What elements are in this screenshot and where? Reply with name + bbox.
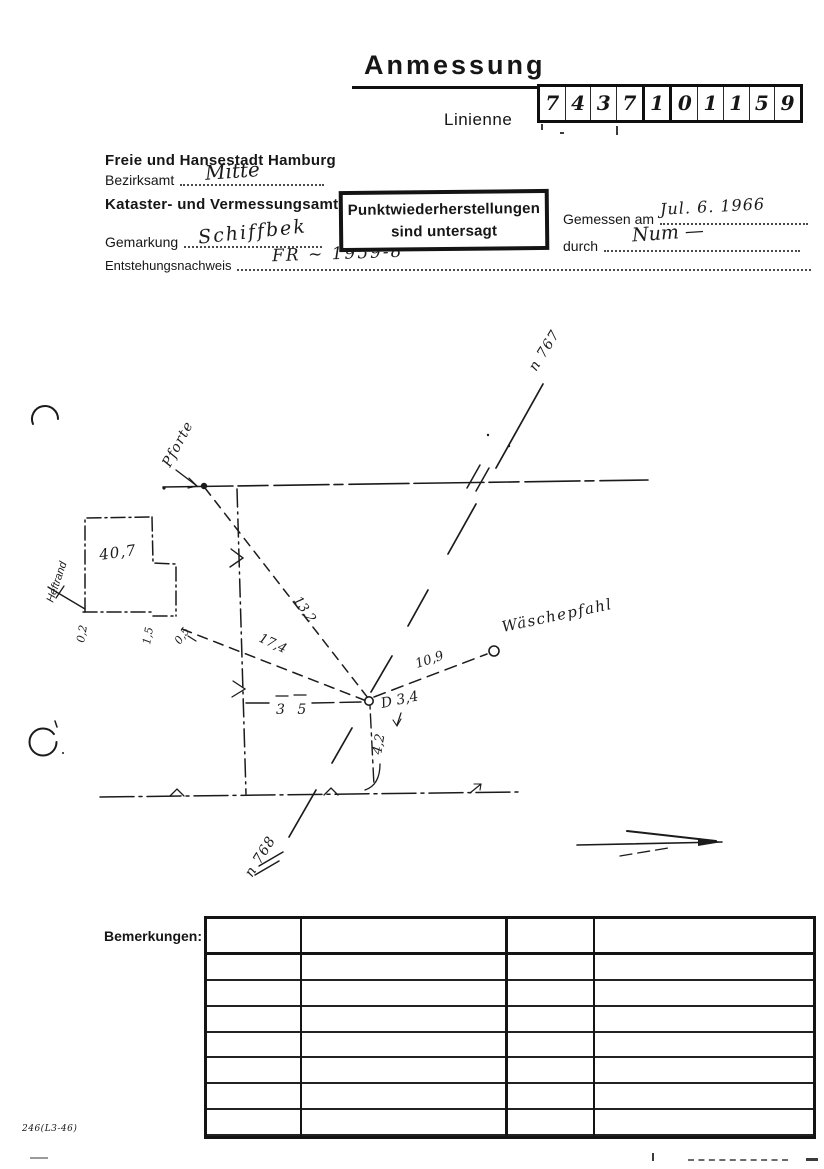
number-cell: 9	[774, 87, 800, 120]
column-divider	[505, 919, 508, 1136]
measure-value-corner: 17,4	[256, 631, 289, 657]
point-number-boxes: 7 4 3 7 1 0 1 1 5 9	[537, 84, 803, 123]
dotted-line	[180, 182, 324, 186]
table-row	[207, 1007, 813, 1033]
table-header-row	[207, 919, 813, 955]
number-cell: 1	[642, 87, 670, 120]
remarks-label: Bemerkungen:	[104, 928, 202, 944]
bezirksamt-value-handwritten: Mitte	[204, 157, 260, 185]
scan-speck	[616, 126, 618, 135]
arrow-mark	[577, 831, 722, 856]
line-number-lower-label: n 768	[242, 833, 280, 880]
scan-speck	[541, 124, 543, 130]
measure-line-corner	[182, 629, 364, 700]
waeschepfahl-label: Wäschepfahl	[500, 595, 614, 636]
table-row	[207, 955, 813, 981]
edge-offset-value: 1,5	[140, 626, 156, 645]
table-row	[207, 1033, 813, 1059]
gate-leader-line	[176, 470, 197, 488]
edge-offset-value: 0,5	[172, 625, 193, 647]
number-cell: 1	[723, 87, 749, 120]
dotted-line	[237, 267, 811, 271]
entstehungsnachweis-row: Entstehungsnachweis	[105, 258, 811, 273]
central-point	[365, 697, 401, 726]
line-number-upper-label: n 767	[526, 327, 564, 374]
durch-label: durch	[563, 238, 598, 254]
measure-line-gate	[205, 488, 368, 698]
heftrand-label: Heftrand	[44, 559, 69, 604]
table-row	[207, 1058, 813, 1084]
number-cell: 3	[590, 87, 616, 120]
remarks-table	[204, 916, 816, 1139]
gemarkung-label: Gemarkung	[105, 234, 178, 250]
building-area-label: 40,7	[97, 541, 138, 564]
scan-artifact	[688, 1159, 788, 1161]
table-row	[207, 981, 813, 1007]
stamp-line-1: Punktwiederherstellungen	[343, 198, 545, 222]
punch-hole-mark	[30, 406, 65, 755]
scan-artifact	[806, 1158, 818, 1161]
liniennetz-label: Linienne	[444, 110, 512, 130]
entstehungsnachweis-label: Entstehungsnachweis	[105, 258, 231, 273]
scan-artifact	[652, 1153, 654, 1161]
column-divider	[593, 919, 595, 1136]
measure-value-down: 4,2	[370, 733, 389, 757]
lower-boundary-line	[100, 784, 520, 797]
scan-dots	[487, 434, 510, 447]
scan-speck	[560, 132, 564, 134]
table-row	[207, 1110, 813, 1136]
number-cell: 1	[697, 87, 723, 120]
number-cell: 5	[749, 87, 775, 120]
number-cell: 7	[540, 87, 565, 120]
number-cell: 4	[565, 87, 591, 120]
margin-line	[48, 586, 85, 609]
edge-offset-value: 0,2	[74, 624, 90, 643]
measure-value-pole: 10,9	[414, 649, 446, 672]
scan-artifact	[30, 1157, 48, 1159]
measure-line-offset	[246, 695, 361, 703]
form-number: 246(L3-46)	[22, 1124, 77, 1134]
amt-line: Kataster- und Vermessungsamt	[105, 196, 338, 213]
number-cell: 0	[669, 87, 697, 120]
page-title: Anmessung	[352, 50, 558, 89]
measure-line-pole	[374, 646, 499, 697]
dotted-line	[604, 248, 800, 252]
column-divider	[300, 919, 302, 1136]
upper-boundary-line	[162, 480, 648, 490]
stamp-line-2: sind untersagt	[343, 220, 545, 244]
pforte-label: Pforte	[159, 419, 197, 471]
table-row	[207, 1084, 813, 1110]
scanned-survey-form: Anmessung Linienne 7 4 3 7 1 0 1 1 5 9 F…	[0, 0, 824, 1169]
bezirksamt-label: Bezirksamt	[105, 172, 174, 188]
survey-line-n767-n768	[255, 384, 543, 875]
vertical-boundary-line	[230, 489, 246, 794]
prohibition-stamp: Punktwiederherstellungen sind untersagt	[339, 189, 550, 252]
building-outline	[83, 517, 176, 616]
point-id-label: D 3,4	[379, 688, 420, 712]
number-cell: 7	[616, 87, 642, 120]
measure-line-down	[365, 706, 380, 790]
measure-value-offset: 3 5	[276, 702, 310, 718]
measure-value-gate: 13,2	[290, 594, 319, 626]
